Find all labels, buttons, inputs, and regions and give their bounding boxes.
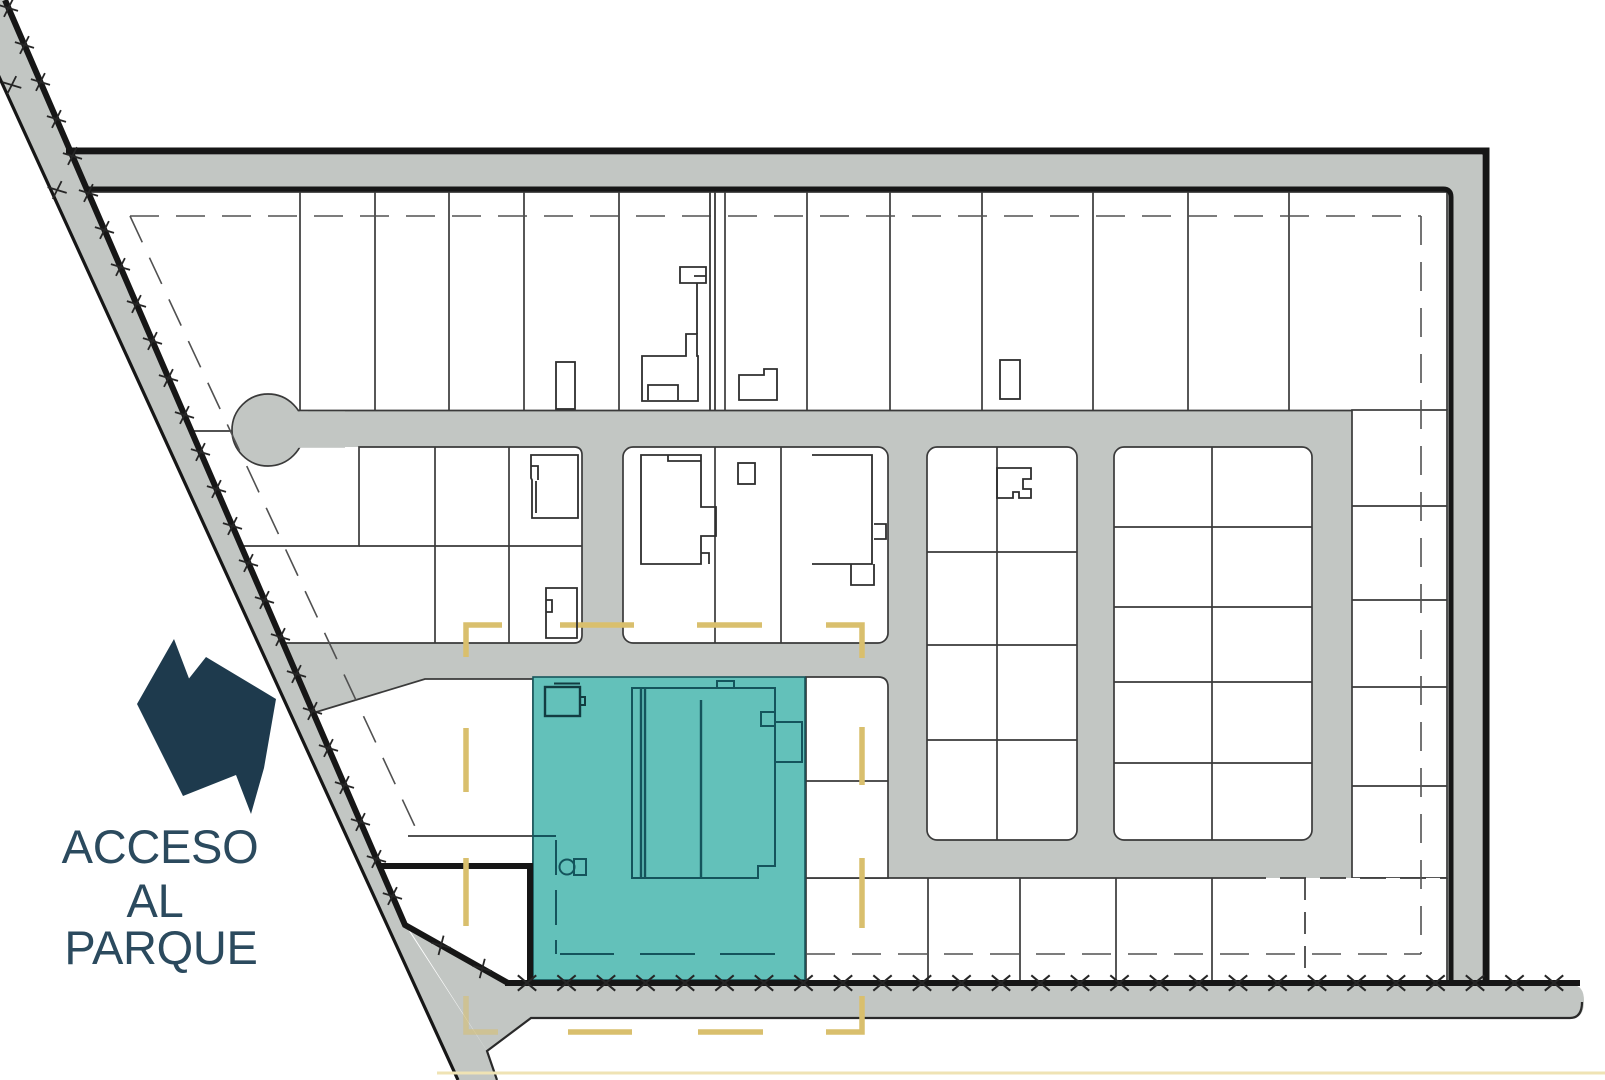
svg-text:ACCESO: ACCESO bbox=[62, 820, 259, 873]
svg-text:AL: AL bbox=[127, 874, 184, 927]
svg-text:PARQUE: PARQUE bbox=[64, 921, 257, 974]
